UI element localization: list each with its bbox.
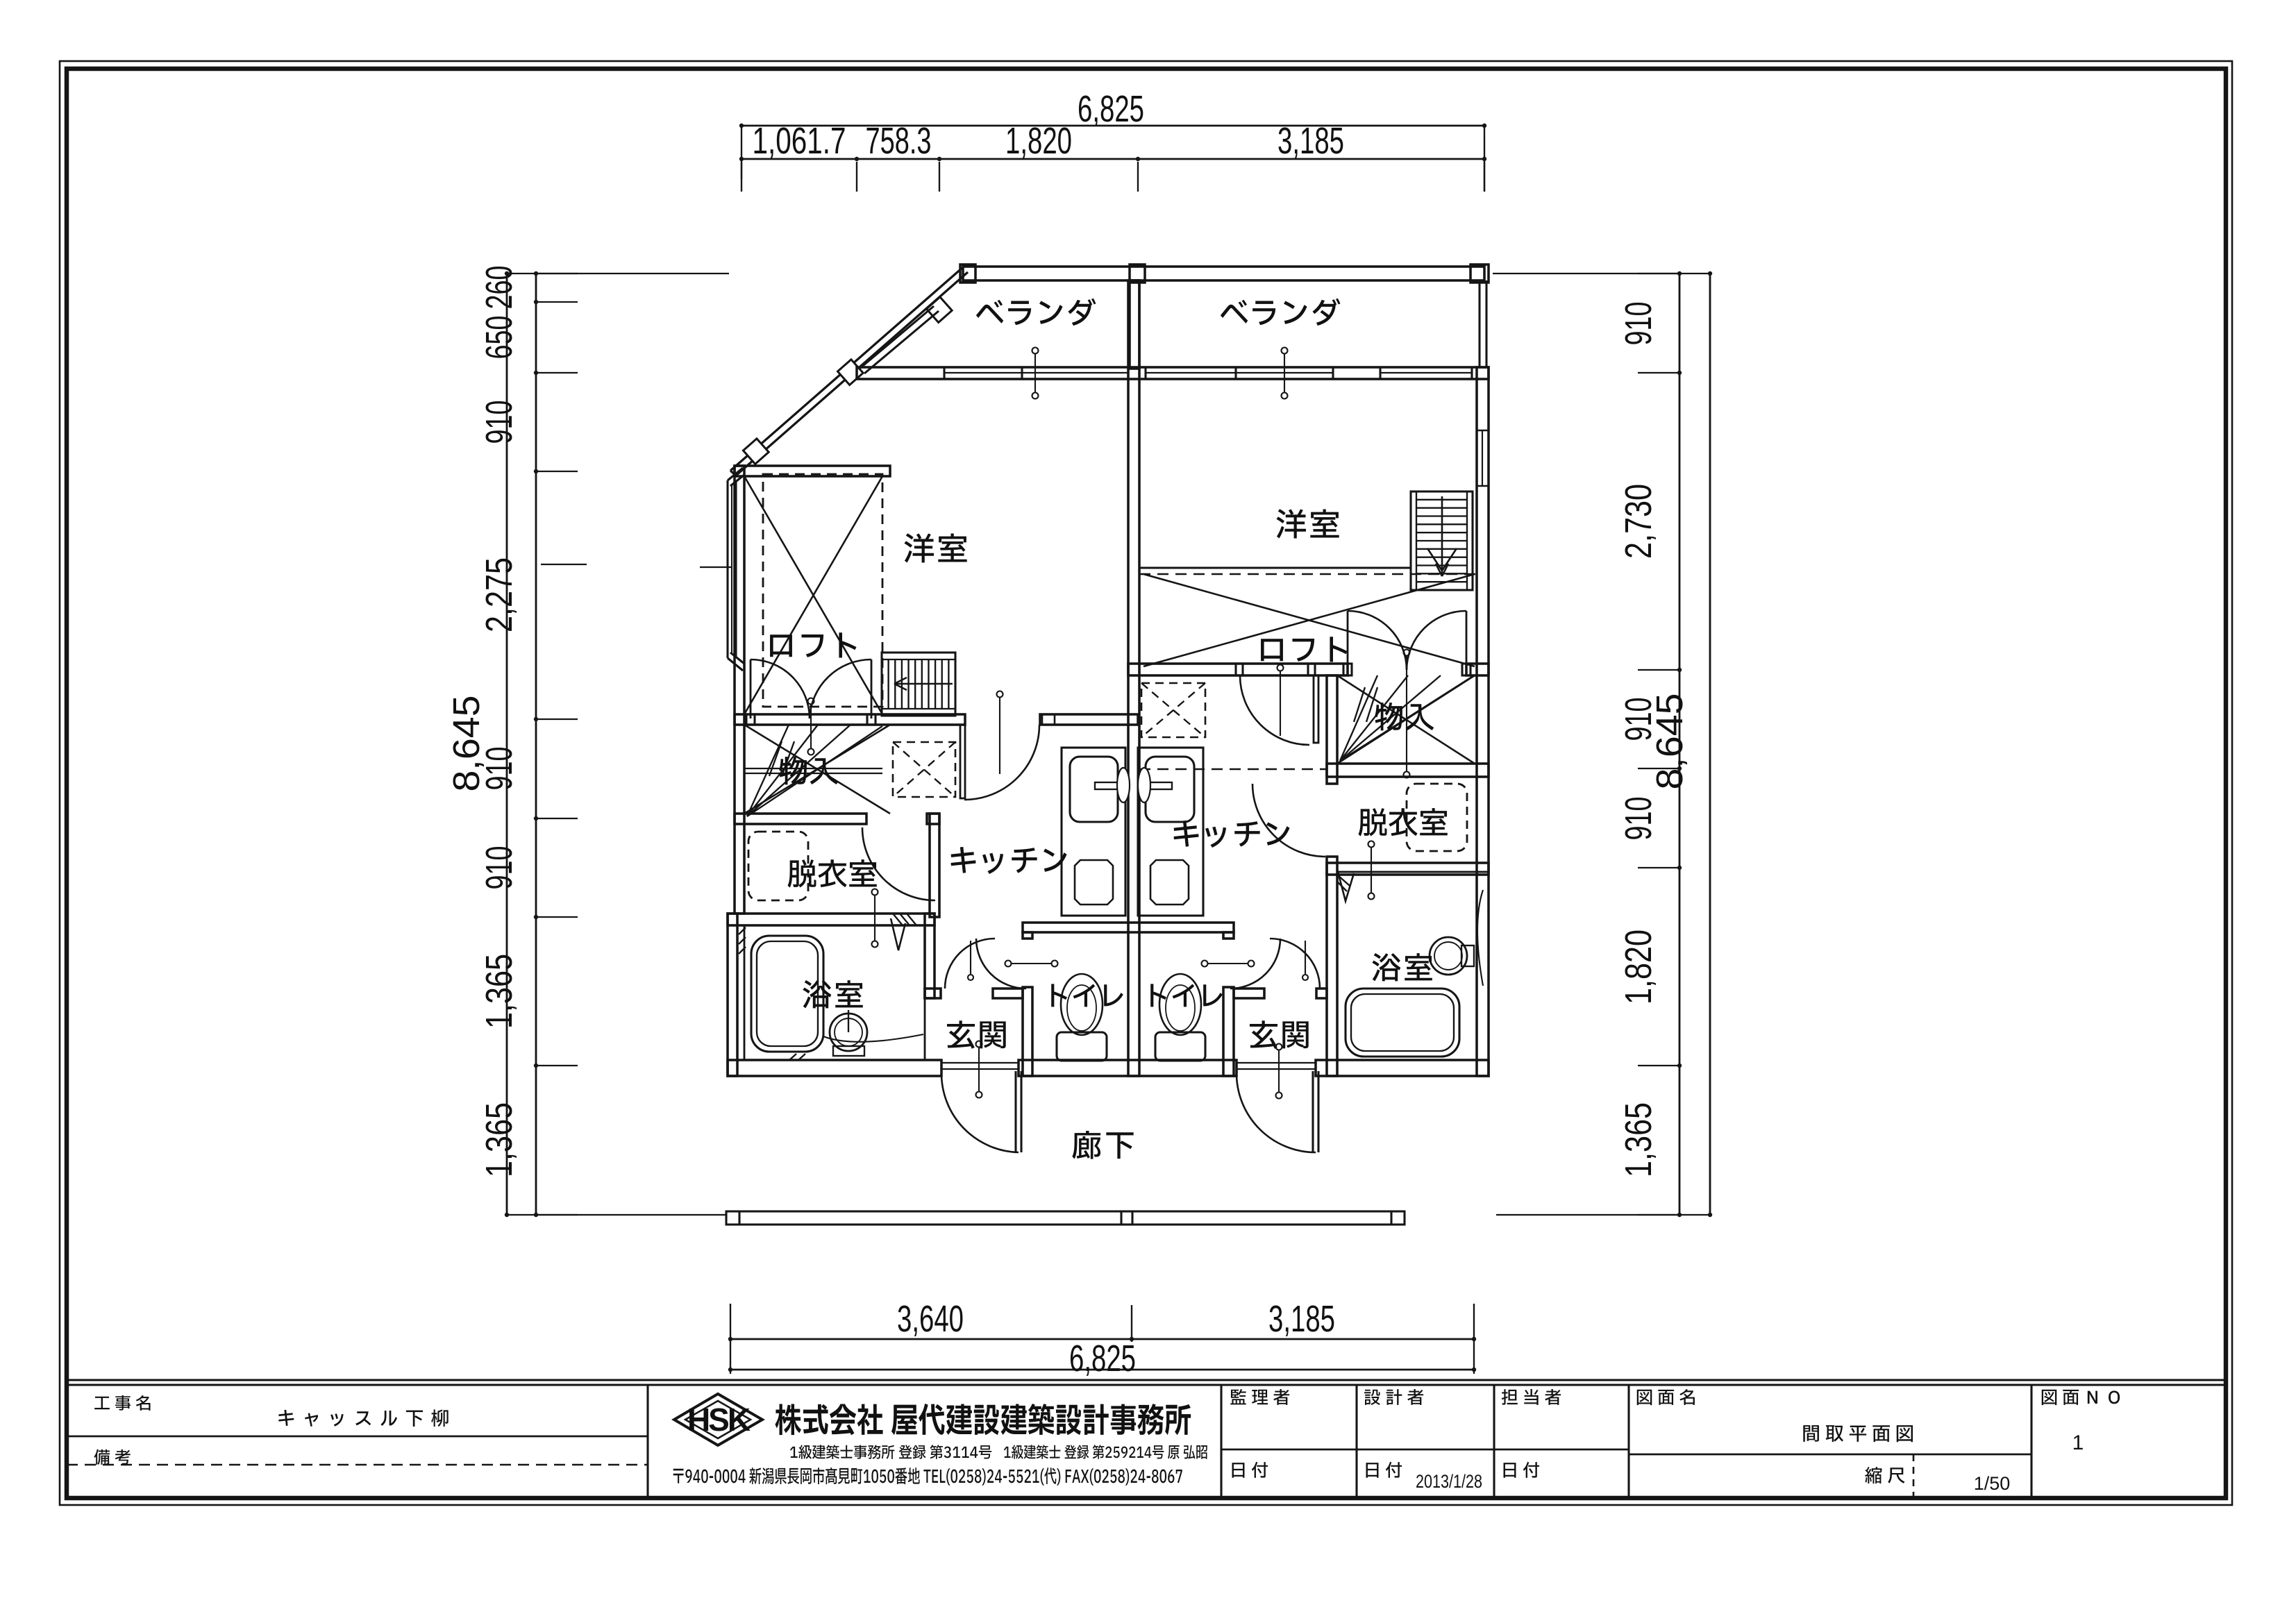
svg-text:1,365: 1,365	[478, 954, 520, 1029]
svg-text:910: 910	[1618, 797, 1659, 841]
svg-text:1,365: 1,365	[1618, 1102, 1659, 1177]
svg-text:8,645: 8,645	[1649, 693, 1691, 790]
svg-text:650: 650	[478, 316, 520, 360]
svg-text:1: 1	[2072, 1431, 2084, 1454]
svg-text:1,061.7: 1,061.7	[753, 120, 846, 162]
svg-text:758.3: 758.3	[866, 120, 932, 162]
svg-text:1,820: 1,820	[1618, 930, 1659, 1004]
svg-text:3,185: 3,185	[1277, 120, 1344, 162]
svg-text:910: 910	[478, 401, 520, 444]
svg-text:260: 260	[478, 266, 520, 310]
svg-text:6,825: 6,825	[1078, 88, 1144, 130]
svg-text:3,185: 3,185	[1268, 1298, 1335, 1340]
svg-text:1,365: 1,365	[478, 1102, 520, 1177]
svg-text:1,820: 1,820	[1005, 120, 1072, 162]
svg-text:6,825: 6,825	[1069, 1338, 1136, 1379]
svg-text:1/50: 1/50	[1974, 1473, 2011, 1494]
svg-text:2,275: 2,275	[478, 557, 520, 632]
svg-text:910: 910	[478, 846, 520, 890]
svg-text:HSK: HSK	[687, 1402, 751, 1438]
svg-text:2,730: 2,730	[1618, 484, 1659, 559]
svg-text:3,640: 3,640	[897, 1298, 964, 1340]
svg-text:8,645: 8,645	[446, 696, 487, 792]
svg-text:910: 910	[1618, 302, 1659, 346]
svg-text:2013/1/28: 2013/1/28	[1416, 1471, 1482, 1492]
